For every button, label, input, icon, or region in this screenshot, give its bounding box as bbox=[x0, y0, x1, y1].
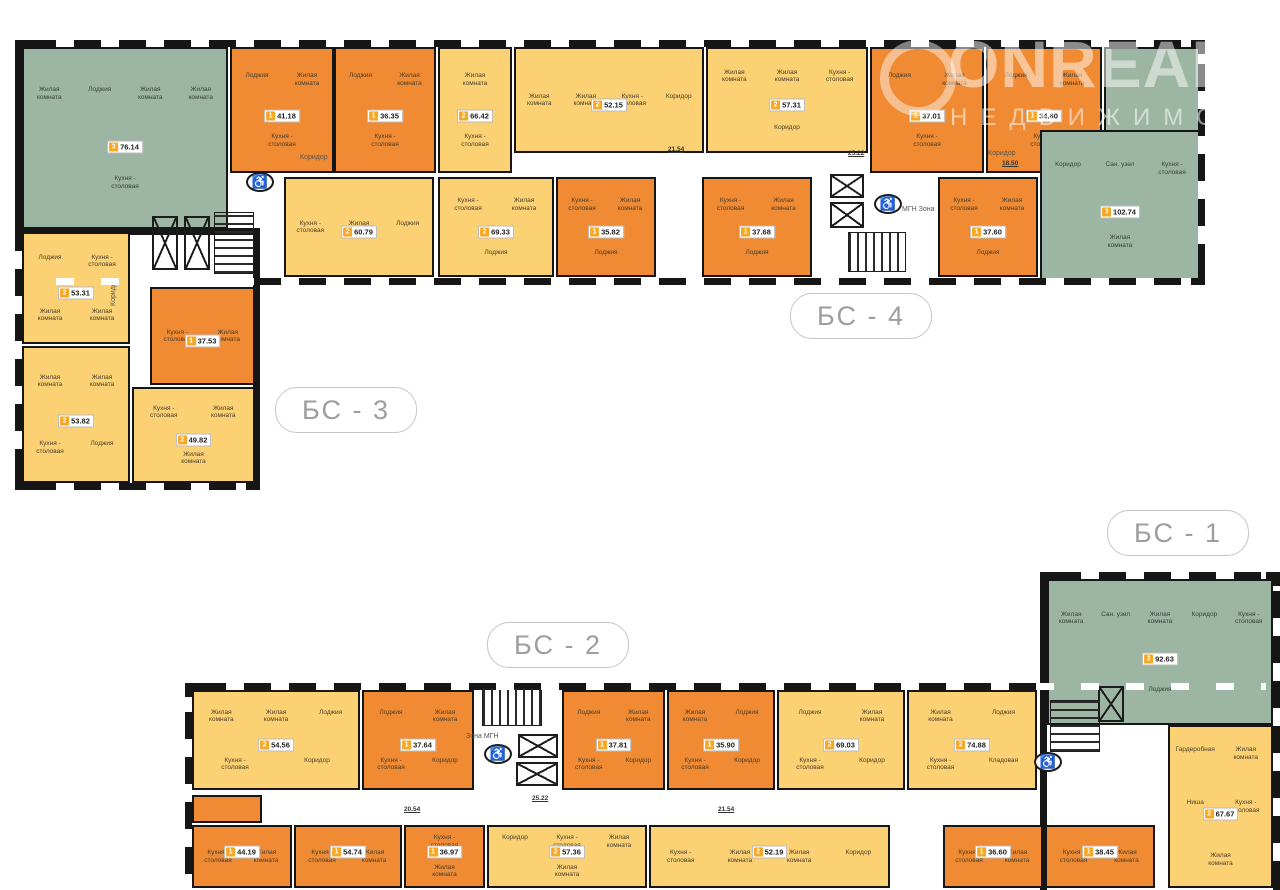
room-label: Жилая комната bbox=[80, 308, 124, 323]
apartment-area-value: 38.45 bbox=[1095, 847, 1114, 856]
room-label: Лоджия bbox=[966, 249, 1010, 256]
rooms-count-badge: 1 bbox=[332, 847, 341, 856]
room-label: Коридор bbox=[657, 93, 701, 108]
rooms-count-badge: 3 bbox=[109, 142, 118, 151]
room-label: Жилая комната bbox=[545, 864, 589, 879]
room-label: Сан. узел bbox=[1094, 611, 1138, 626]
apartment-area-value: 37.81 bbox=[609, 740, 628, 749]
room-label: Жилая комната bbox=[201, 405, 245, 420]
room-label: Кухня - столовая bbox=[363, 133, 407, 148]
rooms-count-badge: 1 bbox=[598, 740, 607, 749]
room-label: Кухня - столовая bbox=[919, 757, 963, 772]
room-label: Гардеробная bbox=[1173, 746, 1217, 761]
room-label: Жилая комната bbox=[80, 374, 124, 389]
apartment-a6933: Кухня - столоваяЖилая комнатаЛоджия269.3… bbox=[438, 177, 554, 277]
rooms-count-badge: 3 bbox=[1144, 655, 1153, 664]
section-badge-bs4-label: БС - 4 bbox=[817, 301, 905, 332]
area-badge-a5219: 252.19 bbox=[752, 845, 788, 858]
rooms-count-badge: 1 bbox=[590, 227, 599, 236]
apartment-area-value: 52.19 bbox=[765, 847, 784, 856]
apartment-a5736: КоридорКухня - столоваяЖилая комнатаЖила… bbox=[487, 825, 647, 888]
room-label: Кухня - столовая bbox=[1227, 611, 1271, 626]
room-label: Кухня - столовая bbox=[28, 440, 72, 455]
elevator-icon bbox=[184, 216, 210, 270]
apartment-a3760: Кухня - столоваяЖилая комнатаЛоджия137.6… bbox=[938, 177, 1038, 277]
room-label: Жилая комната bbox=[608, 197, 652, 212]
apartment-area-value: 34.60 bbox=[1039, 112, 1058, 121]
room-label: Жилая комната bbox=[1049, 611, 1093, 626]
room-label: Жилая комната bbox=[128, 86, 172, 101]
room-label: Жилая комната bbox=[1050, 72, 1094, 87]
area-badge-a3768: 137.68 bbox=[739, 225, 775, 238]
apartment-a7614: Жилая комнатаЛоджияЖилая комнатаЖилая ко… bbox=[22, 47, 228, 229]
room-label: Жилая комната bbox=[765, 69, 809, 84]
section-badge-bs3: БС - 3 bbox=[275, 387, 417, 433]
apartment-area-value: 37.01 bbox=[922, 112, 941, 121]
stairs-icon bbox=[1050, 700, 1100, 752]
rooms-count-badge: 2 bbox=[60, 417, 69, 426]
room-label: Жилая комната bbox=[453, 72, 497, 87]
area-badge-a6642: 266.42 bbox=[457, 110, 493, 123]
apartment-area-value: 41.18 bbox=[277, 112, 296, 121]
room-label: Коридор bbox=[616, 757, 660, 772]
room-label: Жилая комната bbox=[517, 93, 561, 108]
room-label: Жилая комната bbox=[388, 72, 432, 87]
rooms-count-badge: 2 bbox=[260, 740, 269, 749]
apartment-area-value: 60.79 bbox=[354, 227, 373, 236]
window-openings bbox=[29, 483, 246, 490]
area-badge-a4118: 141.18 bbox=[264, 110, 300, 123]
room-label: Лоджия bbox=[725, 709, 769, 724]
room-label: Лоджия bbox=[474, 249, 518, 256]
dimension-label: 20.54 bbox=[404, 806, 420, 813]
room-label: Лоджия bbox=[80, 440, 124, 455]
dimension-label: 21.54 bbox=[718, 806, 734, 813]
dimension-label: 25.22 bbox=[532, 795, 548, 802]
apartment-a5382: Жилая комнатаЖилая комнатаКухня - столов… bbox=[22, 346, 130, 483]
apartment-area-value: 44.19 bbox=[237, 847, 256, 856]
window-openings bbox=[1273, 586, 1280, 888]
elevator-icon bbox=[516, 762, 558, 786]
rooms-count-badge: 2 bbox=[754, 847, 763, 856]
room-label: Сан. узел bbox=[1098, 161, 1142, 176]
room-label: Жилая комната bbox=[172, 451, 216, 466]
room-label: Коридор bbox=[1182, 611, 1226, 626]
area-badge-a9263: 392.63 bbox=[1142, 653, 1178, 666]
room-label: Жилая комната bbox=[27, 86, 71, 101]
room-label: Лоджия bbox=[994, 72, 1038, 87]
section-badge-bs2-label: БС - 2 bbox=[514, 630, 602, 661]
room-label: Жилая комната bbox=[423, 709, 467, 724]
apartment-area-value: 66.42 bbox=[470, 112, 489, 121]
room-label: Жилая комната bbox=[28, 374, 72, 389]
apartment-a6903: ЛоджияЖилая комнатаКухня - столоваяКорид… bbox=[777, 690, 905, 790]
area-badge-a3753: 137.53 bbox=[185, 334, 221, 347]
room-label: Жилая комната bbox=[673, 709, 717, 724]
elevator-icon bbox=[152, 216, 178, 270]
room-label: Лоджия bbox=[309, 709, 353, 724]
room-label: Жилая комната bbox=[933, 72, 977, 87]
apartment-a6767: ГардеробнаяЖилая комнатаНишаКухня - стол… bbox=[1168, 725, 1273, 888]
rooms-count-badge: 2 bbox=[459, 112, 468, 121]
rooms-count-badge: 1 bbox=[977, 847, 986, 856]
room-label: Лоджия bbox=[78, 86, 122, 101]
room-label: Лоджия bbox=[339, 72, 383, 87]
room-label: Лоджия bbox=[878, 72, 922, 87]
apartment-area-value: 74.88 bbox=[967, 740, 986, 749]
room-label: Жилая комната bbox=[616, 709, 660, 724]
room-label: Кухня - столовая bbox=[142, 405, 186, 420]
apartment-area-value: 69.33 bbox=[491, 227, 510, 236]
dimension-label: 21.54 bbox=[668, 146, 684, 153]
area-badge-a3635: 136.35 bbox=[367, 110, 403, 123]
room-label: Кладовая bbox=[982, 757, 1026, 772]
apartment-area-value: 35.90 bbox=[716, 740, 735, 749]
room-label: Коридор bbox=[493, 834, 537, 849]
area-badge-a3845: 138.45 bbox=[1082, 845, 1118, 858]
wheelchair-icon: ♿ bbox=[246, 172, 274, 192]
mgn-zone-label: Зона МГН bbox=[466, 733, 499, 740]
section-badge-bs1: БС - 1 bbox=[1107, 510, 1249, 556]
area-badge-a3590: 135.90 bbox=[703, 738, 739, 751]
section-badge-bs2: БС - 2 bbox=[487, 622, 629, 668]
apartment-area-value: 37.64 bbox=[413, 740, 432, 749]
room-label: Кухня - столовая bbox=[673, 757, 717, 772]
room-label: Коридор bbox=[850, 757, 894, 772]
apartment-a4982: Кухня - столоваяЖилая комнатаЖилая комна… bbox=[132, 387, 255, 483]
apartment-area-value: 37.53 bbox=[198, 336, 217, 345]
room-label: Лоджия bbox=[567, 709, 611, 724]
rooms-count-badge: 2 bbox=[480, 227, 489, 236]
area-badge-a7614: 376.14 bbox=[107, 140, 143, 153]
room-label: Жилая комната bbox=[597, 834, 641, 849]
area-badge-a3760: 137.60 bbox=[970, 225, 1006, 238]
window-openings bbox=[199, 683, 1266, 690]
apartment-area-value: 53.82 bbox=[71, 417, 90, 426]
apartment-a3753: Кухня - столоваяЖилая комната137.53 bbox=[150, 287, 255, 385]
wheelchair-icon: ♿ bbox=[874, 194, 902, 214]
room-label: Лоджия bbox=[584, 249, 628, 256]
area-badge-a6767: 267.67 bbox=[1203, 808, 1239, 821]
room-label: Жилая комната bbox=[1224, 746, 1268, 761]
room-label: Лоджия bbox=[788, 709, 832, 724]
area-badge-a7488: 274.88 bbox=[954, 738, 990, 751]
stairs-icon bbox=[482, 688, 542, 726]
apartment-a3845: Кухня - столоваяЖилая комната138.45 bbox=[1045, 825, 1155, 888]
area-badge-a5474: 154.74 bbox=[330, 845, 366, 858]
room-label: Кухня - столовая bbox=[942, 197, 986, 212]
apartment-area-value: 36.97 bbox=[440, 847, 459, 856]
area-badge-a5731: 257.31 bbox=[769, 99, 805, 112]
room-label: Лоджия bbox=[386, 220, 430, 235]
rooms-count-badge: 1 bbox=[226, 847, 235, 856]
stairs-icon bbox=[214, 212, 254, 274]
rooms-count-badge: 1 bbox=[187, 336, 196, 345]
rooms-count-badge: 1 bbox=[266, 112, 275, 121]
apartment-area-value: 35.82 bbox=[601, 227, 620, 236]
rooms-count-badge: 1 bbox=[911, 112, 920, 121]
rooms-count-badge: 1 bbox=[705, 740, 714, 749]
apartment-area-value: 54.74 bbox=[343, 847, 362, 856]
room-label: Кухня - столовая bbox=[103, 175, 147, 190]
apartment-area-value: 69.03 bbox=[836, 740, 855, 749]
apartment-area-value: 49.82 bbox=[189, 435, 208, 444]
rooms-count-badge: 1 bbox=[1084, 847, 1093, 856]
corridor-label: Коридор bbox=[300, 154, 328, 161]
room-label: Лоджия bbox=[235, 72, 279, 87]
apartment-area-value: 37.60 bbox=[983, 227, 1002, 236]
room-label: Кухня - столовая bbox=[446, 197, 490, 212]
room-label: Лоджия bbox=[28, 254, 72, 269]
room-label: Кухня - столовая bbox=[905, 133, 949, 148]
apartment-a3701: ЛоджияЖилая комнатаКухня - столовая137.0… bbox=[870, 47, 984, 173]
apartment-a5215: Жилая комнатаЖилая комнатаКухня - столов… bbox=[514, 47, 704, 153]
area-badge-a3764: 137.64 bbox=[400, 738, 436, 751]
section-badge-bs1-label: БС - 1 bbox=[1134, 518, 1222, 549]
room-label: Лоджия bbox=[735, 249, 779, 256]
rooms-count-badge: 2 bbox=[1205, 810, 1214, 819]
apartment-a10274-extension bbox=[1104, 47, 1200, 132]
rooms-count-badge: 1 bbox=[402, 740, 411, 749]
room-label: Коридор bbox=[765, 124, 809, 131]
elevator-icon bbox=[830, 202, 864, 228]
apartment-area-value: 92.63 bbox=[1155, 655, 1174, 664]
apartment-area-value: 36.35 bbox=[380, 112, 399, 121]
window-openings bbox=[15, 242, 22, 476]
rooms-count-badge: 2 bbox=[825, 740, 834, 749]
area-badge-a4982: 249.82 bbox=[176, 433, 212, 446]
section-badge-bs4: БС - 4 bbox=[790, 293, 932, 339]
room-label: Кухня - столовая bbox=[818, 69, 862, 84]
apartment-area-value: 57.36 bbox=[562, 847, 581, 856]
apartment-a7488: Жилая комнатаЛоджияКухня - столоваяКладо… bbox=[907, 690, 1037, 790]
apartment-a5474: Кухня - столоваяЖилая комната154.74 bbox=[294, 825, 402, 888]
room-label: Жилая комната bbox=[919, 709, 963, 724]
rooms-count-badge: 2 bbox=[551, 847, 560, 856]
room-label: Коридор bbox=[1046, 161, 1090, 176]
window-openings bbox=[185, 697, 192, 890]
room-label: Жилая комната bbox=[762, 197, 806, 212]
apartment-a3764: ЛоджияЖилая комнатаКухня - столоваяКорид… bbox=[362, 690, 474, 790]
wheelchair-icon: ♿ bbox=[1034, 752, 1062, 772]
room-label: Жилая комната bbox=[1138, 611, 1182, 626]
room-label: Жилая комната bbox=[28, 308, 72, 323]
room-label: Жилая комната bbox=[1199, 852, 1243, 867]
area-badge-a3582: 135.82 bbox=[588, 225, 624, 238]
room-label: Кухня - столовая bbox=[369, 757, 413, 772]
room-label: Жилая комната bbox=[850, 709, 894, 724]
window-openings bbox=[29, 278, 1191, 285]
rooms-count-badge: 1 bbox=[1028, 112, 1037, 121]
apartment-area-value: 53.31 bbox=[71, 289, 90, 298]
apartment-area-value: 57.31 bbox=[782, 101, 801, 110]
apartment-a3768: Кухня - столоваяЖилая комнатаЛоджия137.6… bbox=[702, 177, 812, 277]
room-label: Кухня - столовая bbox=[659, 849, 703, 864]
apartment-area-value: 37.68 bbox=[752, 227, 771, 236]
room-label: Жилая комната bbox=[502, 197, 546, 212]
rooms-count-badge: 2 bbox=[956, 740, 965, 749]
room-label: Кухня - столовая bbox=[453, 133, 497, 148]
apartment-a3635: ЛоджияЖилая комнатаКухня - столовая136.3… bbox=[334, 47, 436, 173]
rooms-count-badge: 1 bbox=[741, 227, 750, 236]
room-label: Жилая комната bbox=[712, 69, 756, 84]
apartment-a6642: Жилая комнатаКухня - столовая266.42 bbox=[438, 47, 512, 173]
corridor-label: Коридор bbox=[988, 150, 1016, 157]
apartment-area-value: 36.60 bbox=[988, 847, 1007, 856]
apartment-a3781: ЛоджияЖилая комнатаКухня - столоваяКорид… bbox=[562, 690, 665, 790]
dimension-label: 25.22 bbox=[848, 150, 864, 157]
window-openings bbox=[29, 40, 1191, 47]
mgn-zone-label: МГН Зона bbox=[902, 206, 935, 213]
room-label: Жилая комната bbox=[179, 86, 223, 101]
apartment-a4419: Кухня - столоваяЖилая комната144.19 bbox=[192, 825, 292, 888]
room-label: Жилая комната bbox=[423, 864, 467, 879]
area-badge-a5382: 253.82 bbox=[58, 415, 94, 428]
room-label: Жилая комната bbox=[1098, 234, 1142, 249]
area-badge-a6903: 269.03 bbox=[823, 738, 859, 751]
rooms-count-badge: 2 bbox=[771, 101, 780, 110]
room-label: Кухня - столовая bbox=[288, 220, 332, 235]
apartment-a3582: Кухня - столоваяЖилая комнатаЛоджия135.8… bbox=[556, 177, 656, 277]
room-label: Лоджия bbox=[982, 709, 1026, 724]
rooms-count-badge: 1 bbox=[429, 847, 438, 856]
area-badge-a3697: 136.97 bbox=[427, 845, 463, 858]
room-label: Кухня - столовая bbox=[260, 133, 304, 148]
room-label: Жилая комната bbox=[254, 709, 298, 724]
room-label: Кухня - столовая bbox=[788, 757, 832, 772]
apartment-area-value: 52.15 bbox=[604, 101, 623, 110]
apartment-area-value: 102.74 bbox=[1113, 208, 1136, 217]
rooms-count-badge: 2 bbox=[593, 101, 602, 110]
room-label: Коридор bbox=[836, 849, 880, 864]
area-badge-a5456: 254.56 bbox=[258, 738, 294, 751]
apartment-area-value: 54.56 bbox=[271, 740, 290, 749]
rooms-count-badge: 1 bbox=[972, 227, 981, 236]
room-label: Кухня - столовая bbox=[567, 757, 611, 772]
floor-plan-canvas: Жилая комнатаЛоджияЖилая комнатаЖилая ко… bbox=[0, 0, 1280, 890]
elevator-icon bbox=[830, 174, 864, 198]
room-label: Коридор bbox=[295, 757, 339, 772]
apartment-a3660: Кухня - столоваяЖилая комната136.60 bbox=[943, 825, 1043, 888]
room-label: Лоджия bbox=[369, 709, 413, 724]
area-badge-a3460: 134.60 bbox=[1026, 110, 1062, 123]
section-badge-bs3-label: БС - 3 bbox=[302, 395, 390, 426]
area-badge-a4419: 144.19 bbox=[224, 845, 260, 858]
rooms-count-badge: 1 bbox=[369, 112, 378, 121]
apartment-a3590: Жилая комнатаЛоджияКухня - столоваяКорид… bbox=[667, 690, 775, 790]
area-badge-a3781: 137.81 bbox=[596, 738, 632, 751]
room-label: Жилая комната bbox=[199, 709, 243, 724]
rooms-count-badge: 2 bbox=[343, 227, 352, 236]
room-label: Жилая комната bbox=[990, 197, 1034, 212]
elevator-icon bbox=[1098, 686, 1124, 722]
wheelchair-icon: ♿ bbox=[484, 744, 512, 764]
rooms-count-badge: 3 bbox=[1102, 208, 1111, 217]
room-label: Кухня - столовая bbox=[213, 757, 257, 772]
rooms-count-badge: 2 bbox=[178, 435, 187, 444]
apartment-a5219: Кухня - столоваяЖилая комнатаЖилая комна… bbox=[649, 825, 890, 888]
apartment-area-value: 67.67 bbox=[1216, 810, 1235, 819]
dimension-label: 18.50 bbox=[1002, 160, 1018, 167]
stairs-icon bbox=[848, 232, 906, 272]
apartment-a5731: Жилая комнатаЖилая комнатаКухня - столов… bbox=[706, 47, 868, 153]
area-badge-a5736: 257.36 bbox=[549, 845, 585, 858]
room-label: Кухня - столовая bbox=[1150, 161, 1194, 176]
area-badge-a6933: 269.33 bbox=[478, 225, 514, 238]
room-label: Коридор bbox=[725, 757, 769, 772]
area-badge-a3701: 137.01 bbox=[909, 110, 945, 123]
area-badge-a3660: 136.60 bbox=[975, 845, 1011, 858]
apartment-area-value: 76.14 bbox=[120, 142, 139, 151]
apartment-a4419-extension bbox=[192, 795, 262, 823]
area-badge-a10274: 3102.74 bbox=[1100, 206, 1140, 219]
apartment-a10274: КоридорСан. узелКухня - столоваяЖилая ко… bbox=[1040, 130, 1200, 280]
elevator-icon bbox=[518, 734, 558, 758]
window-openings bbox=[1054, 572, 1266, 579]
area-badge-a5331: 253.31 bbox=[58, 287, 94, 300]
room-label: Кухня - столовая bbox=[80, 254, 124, 269]
apartment-a6079: Кухня - столоваяЖилая комнатаЛоджия260.7… bbox=[284, 177, 434, 277]
room-label: Кухня - столовая bbox=[709, 197, 753, 212]
room-label: Коридор bbox=[423, 757, 467, 772]
room-label: Кухня - столовая bbox=[560, 197, 604, 212]
room-label: Жилая комната bbox=[285, 72, 329, 87]
apartment-a3697: Кухня - столоваяЖилая комната136.97 bbox=[404, 825, 485, 888]
area-badge-a6079: 260.79 bbox=[341, 225, 377, 238]
rooms-count-badge: 2 bbox=[60, 289, 69, 298]
apartment-a5456: Жилая комнатаЖилая комнатаЛоджияКухня - … bbox=[192, 690, 360, 790]
window-openings bbox=[1198, 54, 1205, 271]
area-badge-a5215: 252.15 bbox=[591, 99, 627, 112]
